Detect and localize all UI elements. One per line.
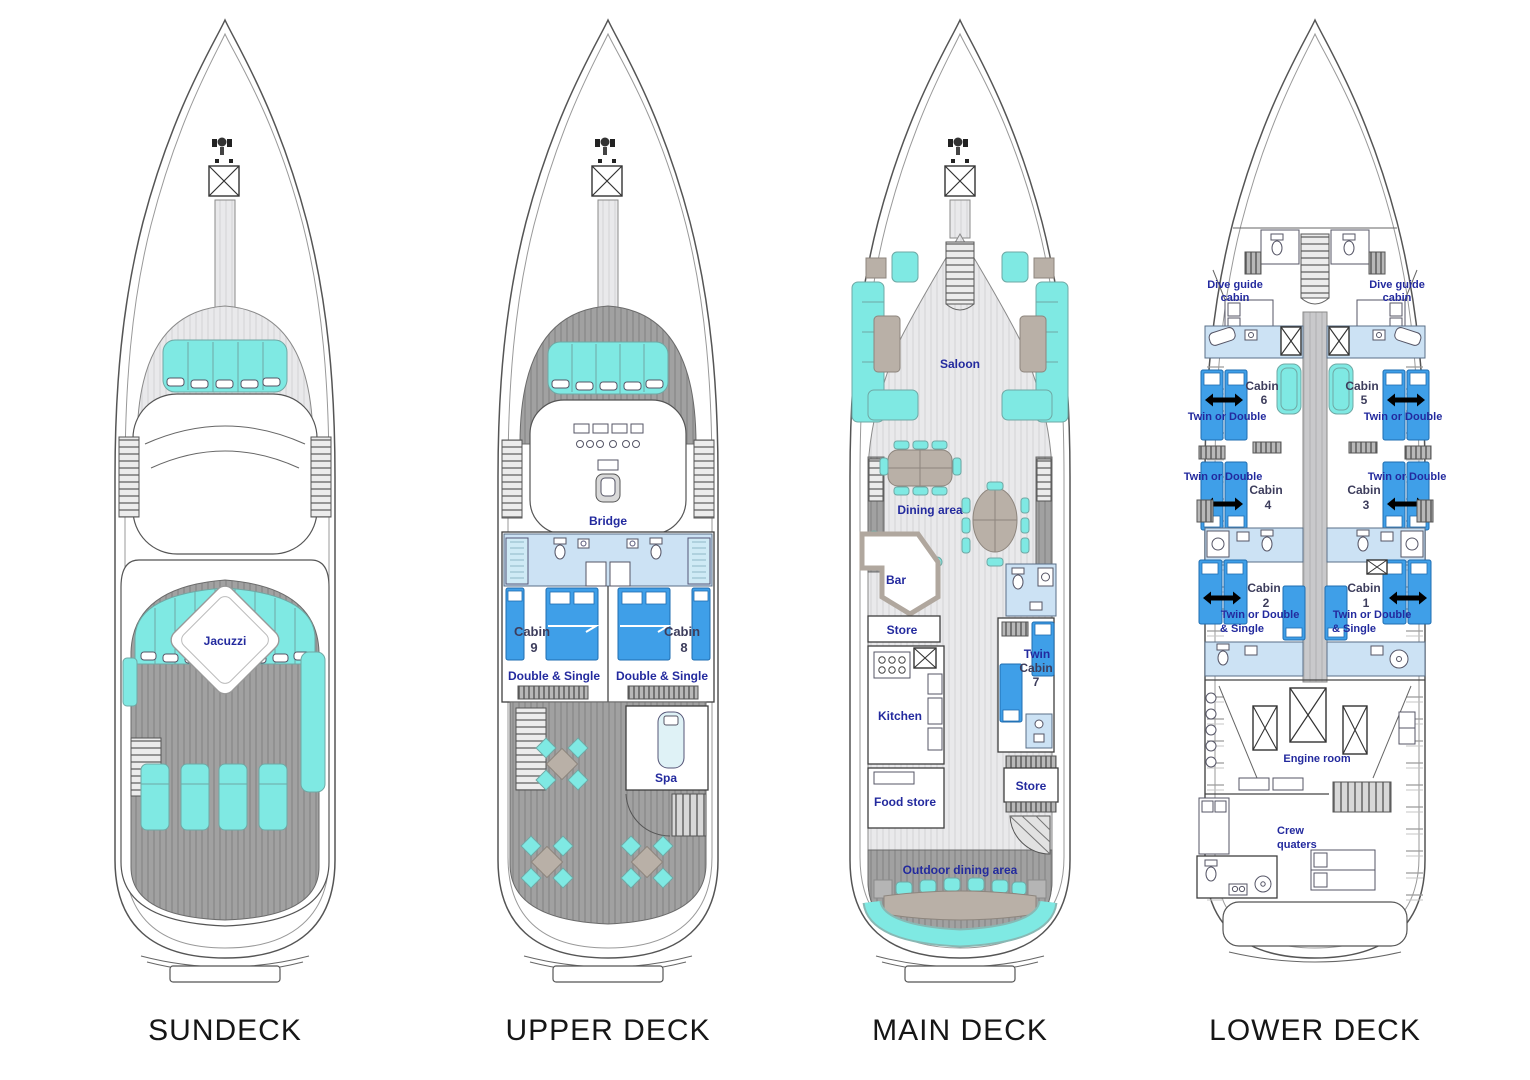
main-deck-drawing: Saloon Dining area Bar Store Ki [810, 12, 1110, 1004]
cabin7-line3: 7 [1033, 675, 1040, 689]
dive-guide-label: cabin [1383, 292, 1412, 304]
side-table [1034, 258, 1054, 278]
saloon-stairs [946, 242, 974, 304]
cabin9-type: Double & Single [508, 669, 600, 683]
spa-room: Spa [626, 706, 708, 790]
saloon-label: Saloon [940, 357, 980, 371]
storage-bench [628, 686, 698, 699]
cabin9-number: 9 [530, 640, 537, 655]
lower-deck-drawing: Dive guide cabin Dive guide cabin Cabin … [1165, 12, 1465, 1004]
crew-label-line2: quaters [1277, 839, 1317, 851]
store-aft: Store [1004, 756, 1058, 812]
cabin-7: Twin Cabin 7 [998, 618, 1054, 752]
bow-walkway [215, 200, 235, 310]
cabin1-type-line2: & Single [1332, 623, 1376, 635]
forward-sunpad [163, 340, 287, 392]
cabin2-type-line1: Twin or Double [1221, 609, 1300, 621]
bow-walkway [598, 200, 618, 312]
dive-guide-label: Dive guide [1369, 279, 1425, 291]
bow-wc-starboard [1331, 230, 1369, 264]
port-stairs [119, 437, 139, 517]
closet [1197, 500, 1213, 522]
storage-rack [1405, 446, 1431, 459]
armchair [1002, 252, 1028, 282]
crew-bunks [1311, 850, 1375, 890]
cabin2-name: Cabin [1247, 581, 1280, 595]
bow-walkway [950, 200, 970, 238]
outdoor-dining-label: Outdoor dining area [903, 863, 1018, 877]
cabin3-name: Cabin [1347, 483, 1380, 497]
side-sunpad [301, 652, 325, 792]
cabin3-type: Twin or Double [1368, 471, 1447, 483]
bridge-label: Bridge [589, 514, 627, 528]
bathrooms [504, 534, 712, 586]
closet [1417, 500, 1433, 522]
side-mat [123, 658, 137, 706]
cabin4-name: Cabin [1249, 483, 1282, 497]
kitchen-label: Kitchen [878, 709, 922, 723]
closet [1369, 252, 1385, 274]
port-stairs [502, 440, 522, 518]
bridge: Bridge [530, 400, 686, 534]
cabin8-name: Cabin [664, 624, 700, 639]
store-aft-label: Store [1016, 779, 1047, 793]
storage-bench [518, 686, 588, 699]
cabin9-name: Cabin [514, 624, 550, 639]
cabin4-type: Twin or Double [1184, 471, 1263, 483]
coffee-table [1020, 316, 1046, 372]
forward-sunpad [548, 342, 668, 394]
cabin6-type: Twin or Double [1188, 411, 1267, 423]
aft-deck: Spa [510, 702, 708, 924]
storage-rack [1349, 442, 1377, 453]
spa-label: Spa [655, 771, 677, 785]
main-deck-plan: Saloon Dining area Bar Store Ki [810, 12, 1110, 1004]
sundeck-drawing: Jacuzzi [75, 12, 375, 1004]
upper-deck-plan: Bridge Cabin 9 Double & Single [458, 12, 758, 1004]
engine-room-label: Engine room [1283, 753, 1350, 765]
closet [1245, 252, 1261, 274]
storage-rack [1199, 446, 1225, 459]
superstructure-roof [133, 394, 317, 554]
sundeck-title: SUNDECK [75, 1014, 375, 1048]
cabin8-type: Double & Single [616, 669, 708, 683]
stern-platform [141, 956, 309, 982]
bar-label: Bar [886, 573, 906, 587]
lower-deck-plan: Dive guide cabin Dive guide cabin Cabin … [1165, 12, 1465, 1004]
crew-label-line1: Crew [1277, 825, 1304, 837]
stern-platform [876, 956, 1044, 982]
food-store-label: Food store [874, 795, 936, 809]
cabin6-number: 6 [1261, 393, 1268, 407]
side-table [866, 258, 886, 278]
crew-stairs [1333, 782, 1391, 812]
cabin8-number: 8 [680, 640, 687, 655]
upper-deck-drawing: Bridge Cabin 9 Double & Single [458, 12, 758, 1004]
sundeck-aft-lounge: Jacuzzi [121, 560, 329, 926]
side-stairs-starboard [1037, 459, 1051, 501]
starboard-stairs [311, 437, 331, 517]
cabin5-name: Cabin [1345, 379, 1378, 393]
corridor [1303, 312, 1327, 682]
lower-deck-title: LOWER DECK [1165, 1014, 1465, 1048]
cabin7-line2: Cabin [1019, 661, 1052, 675]
cabin2-type-line2: & Single [1220, 623, 1264, 635]
upper-deck-title: UPPER DECK [458, 1014, 758, 1048]
cabin-8: Cabin 8 Double & Single [616, 588, 710, 683]
cabin3-number: 3 [1363, 498, 1370, 512]
cabin5-type: Twin or Double [1364, 411, 1443, 423]
dive-guide-label: Dive guide [1207, 279, 1263, 291]
armchair [892, 252, 918, 282]
dive-guide-label: cabin [1221, 292, 1250, 304]
stern-platform [524, 956, 692, 982]
cabin-9: Cabin 9 Double & Single [506, 588, 600, 683]
main-deck-title: MAIN DECK [810, 1014, 1110, 1048]
cabin2-number: 2 [1263, 596, 1270, 610]
store-forward: Store [868, 616, 940, 642]
coffee-table [874, 316, 900, 372]
forward-stairs [1301, 234, 1329, 304]
cabin1-name: Cabin [1347, 581, 1380, 595]
cabin7-line1: Twin [1024, 647, 1050, 661]
store-forward-label: Store [887, 623, 918, 637]
guest-bathroom [1006, 564, 1056, 616]
jacuzzi-label: Jacuzzi [204, 634, 247, 648]
food-store: Food store [868, 768, 944, 828]
cabin1-type-line1: Twin or Double [1333, 609, 1412, 621]
kitchen: Kitchen [868, 646, 944, 764]
storage-rack [1253, 442, 1281, 453]
crew-bathroom [1197, 856, 1277, 898]
cabin1-number: 1 [1363, 596, 1370, 610]
cabin-block: Cabin 9 Double & Single Cabin 8 Double &… [502, 532, 714, 702]
starboard-stairs [694, 440, 714, 518]
cabin6-name: Cabin [1245, 379, 1278, 393]
sundeck-plan: Jacuzzi [75, 12, 375, 1004]
cabin4-number: 4 [1265, 498, 1272, 512]
bow-wc-port [1261, 230, 1299, 264]
cabin5-number: 5 [1361, 393, 1368, 407]
yacht-deck-plan: Jacuzzi [0, 0, 1530, 1080]
dining-area-label: Dining area [897, 503, 963, 517]
